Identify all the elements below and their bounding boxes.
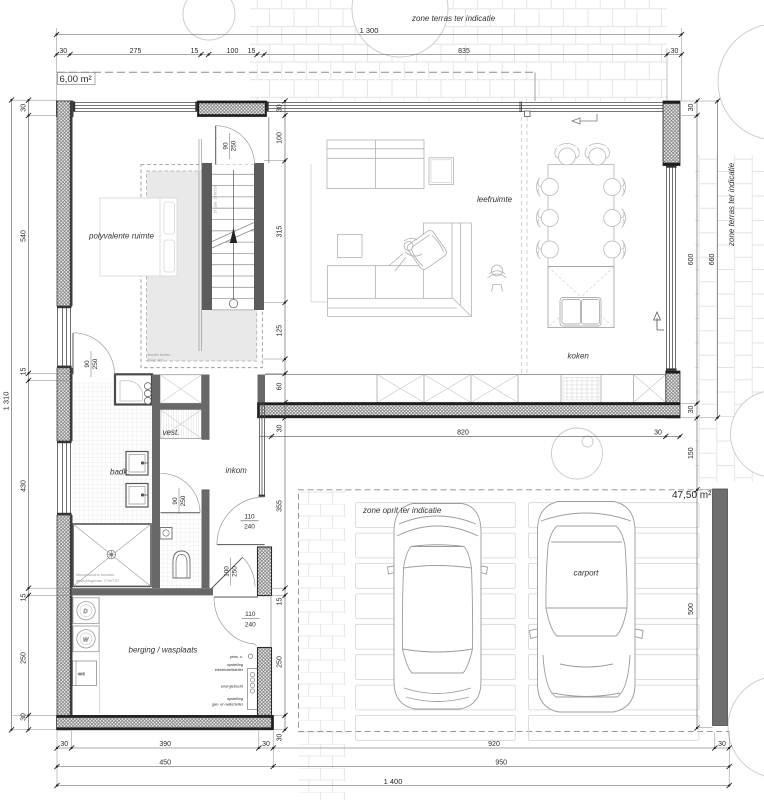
svg-text:390: 390 <box>159 741 171 748</box>
svg-text:90: 90 <box>84 360 91 368</box>
svg-text:fund. P2: fund. P2 <box>148 358 164 363</box>
svg-text:920: 920 <box>488 741 500 748</box>
svg-text:badk.: badk. <box>110 468 130 477</box>
svg-text:100: 100 <box>277 132 284 144</box>
svg-text:30: 30 <box>688 104 695 112</box>
svg-text:500: 500 <box>688 603 695 615</box>
svg-text:koken: koken <box>568 352 590 361</box>
svg-text:17 optr. 176/250: 17 optr. 176/250 <box>213 184 218 214</box>
svg-text:820: 820 <box>457 430 469 437</box>
svg-text:540: 540 <box>21 230 28 242</box>
svg-text:opstelling: opstelling <box>227 697 243 701</box>
svg-text:600: 600 <box>688 253 695 265</box>
svg-text:1 300: 1 300 <box>360 26 379 35</box>
svg-text:110: 110 <box>245 611 256 618</box>
svg-text:30: 30 <box>60 741 68 748</box>
svg-text:250: 250 <box>21 652 28 664</box>
svg-text:315: 315 <box>277 226 284 238</box>
svg-text:250: 250 <box>92 358 99 369</box>
svg-text:15: 15 <box>191 48 199 55</box>
svg-text:30: 30 <box>262 741 270 748</box>
svg-text:275: 275 <box>130 48 142 55</box>
svg-text:110: 110 <box>244 514 255 521</box>
svg-text:cv-k: cv-k <box>78 672 85 676</box>
svg-text:W: W <box>83 637 89 643</box>
svg-text:zone terras ter indicatie: zone terras ter indicatie <box>727 162 736 247</box>
svg-text:prins. c.: prins. c. <box>230 655 243 659</box>
svg-text:450: 450 <box>159 760 171 767</box>
svg-text:250: 250 <box>231 140 238 151</box>
svg-text:240: 240 <box>245 622 256 629</box>
svg-text:30: 30 <box>59 48 67 55</box>
svg-text:47,50 m²: 47,50 m² <box>672 490 712 501</box>
svg-text:15: 15 <box>248 48 256 55</box>
svg-text:polyvalente ruimte: polyvalente ruimte <box>88 232 154 241</box>
svg-text:inloopdouche kunstst.: inloopdouche kunstst. <box>76 572 115 577</box>
svg-text:bxdxh kelder: bxdxh kelder <box>148 352 171 357</box>
svg-text:660: 660 <box>709 253 716 265</box>
svg-text:energiebocht: energiebocht <box>221 685 244 689</box>
svg-text:240: 240 <box>244 524 255 531</box>
svg-text:60: 60 <box>277 383 284 391</box>
svg-text:30: 30 <box>654 430 662 437</box>
svg-text:D: D <box>84 609 88 615</box>
svg-text:250: 250 <box>232 566 239 577</box>
svg-text:zone oprit ter indicatie: zone oprit ter indicatie <box>362 506 442 515</box>
svg-text:1 400: 1 400 <box>384 777 403 786</box>
svg-text:30: 30 <box>718 741 726 748</box>
svg-text:90: 90 <box>172 497 179 505</box>
svg-text:zone terras ter indicatie: zone terras ter indicatie <box>411 14 496 23</box>
svg-text:30: 30 <box>21 104 28 112</box>
svg-text:15: 15 <box>21 368 28 376</box>
svg-text:inkom: inkom <box>226 466 248 475</box>
svg-text:30: 30 <box>277 425 284 433</box>
svg-text:30: 30 <box>688 406 695 414</box>
svg-text:gas- en waterteller: gas- en waterteller <box>212 703 244 707</box>
svg-text:15: 15 <box>277 598 284 606</box>
svg-text:15: 15 <box>21 594 28 602</box>
svg-text:100: 100 <box>227 48 239 55</box>
svg-text:835: 835 <box>458 48 470 55</box>
svg-text:30: 30 <box>277 104 284 112</box>
svg-text:430: 430 <box>21 480 28 492</box>
svg-text:355: 355 <box>277 500 284 512</box>
svg-text:leefruimte: leefruimte <box>477 195 513 204</box>
svg-text:berging / wasplaats: berging / wasplaats <box>129 646 198 655</box>
svg-text:carport: carport <box>574 569 600 578</box>
svg-text:250: 250 <box>277 656 284 668</box>
svg-text:30: 30 <box>277 734 284 742</box>
svg-text:250: 250 <box>180 495 187 506</box>
svg-text:950: 950 <box>495 760 507 767</box>
svg-text:90: 90 <box>223 142 230 150</box>
svg-text:30: 30 <box>21 713 28 721</box>
svg-text:100: 100 <box>224 566 231 577</box>
svg-text:afwerkingsvlak 770x770: afwerkingsvlak 770x770 <box>76 578 119 583</box>
svg-text:30: 30 <box>671 48 679 55</box>
svg-text:6,00 m²: 6,00 m² <box>60 74 92 85</box>
svg-text:125: 125 <box>277 325 284 337</box>
svg-text:opstelling: opstelling <box>227 663 243 667</box>
svg-text:vest.: vest. <box>163 428 180 437</box>
svg-text:150: 150 <box>688 447 695 459</box>
svg-text:elektriciteitsteller: elektriciteitsteller <box>215 668 244 672</box>
svg-text:1 310: 1 310 <box>2 392 11 411</box>
